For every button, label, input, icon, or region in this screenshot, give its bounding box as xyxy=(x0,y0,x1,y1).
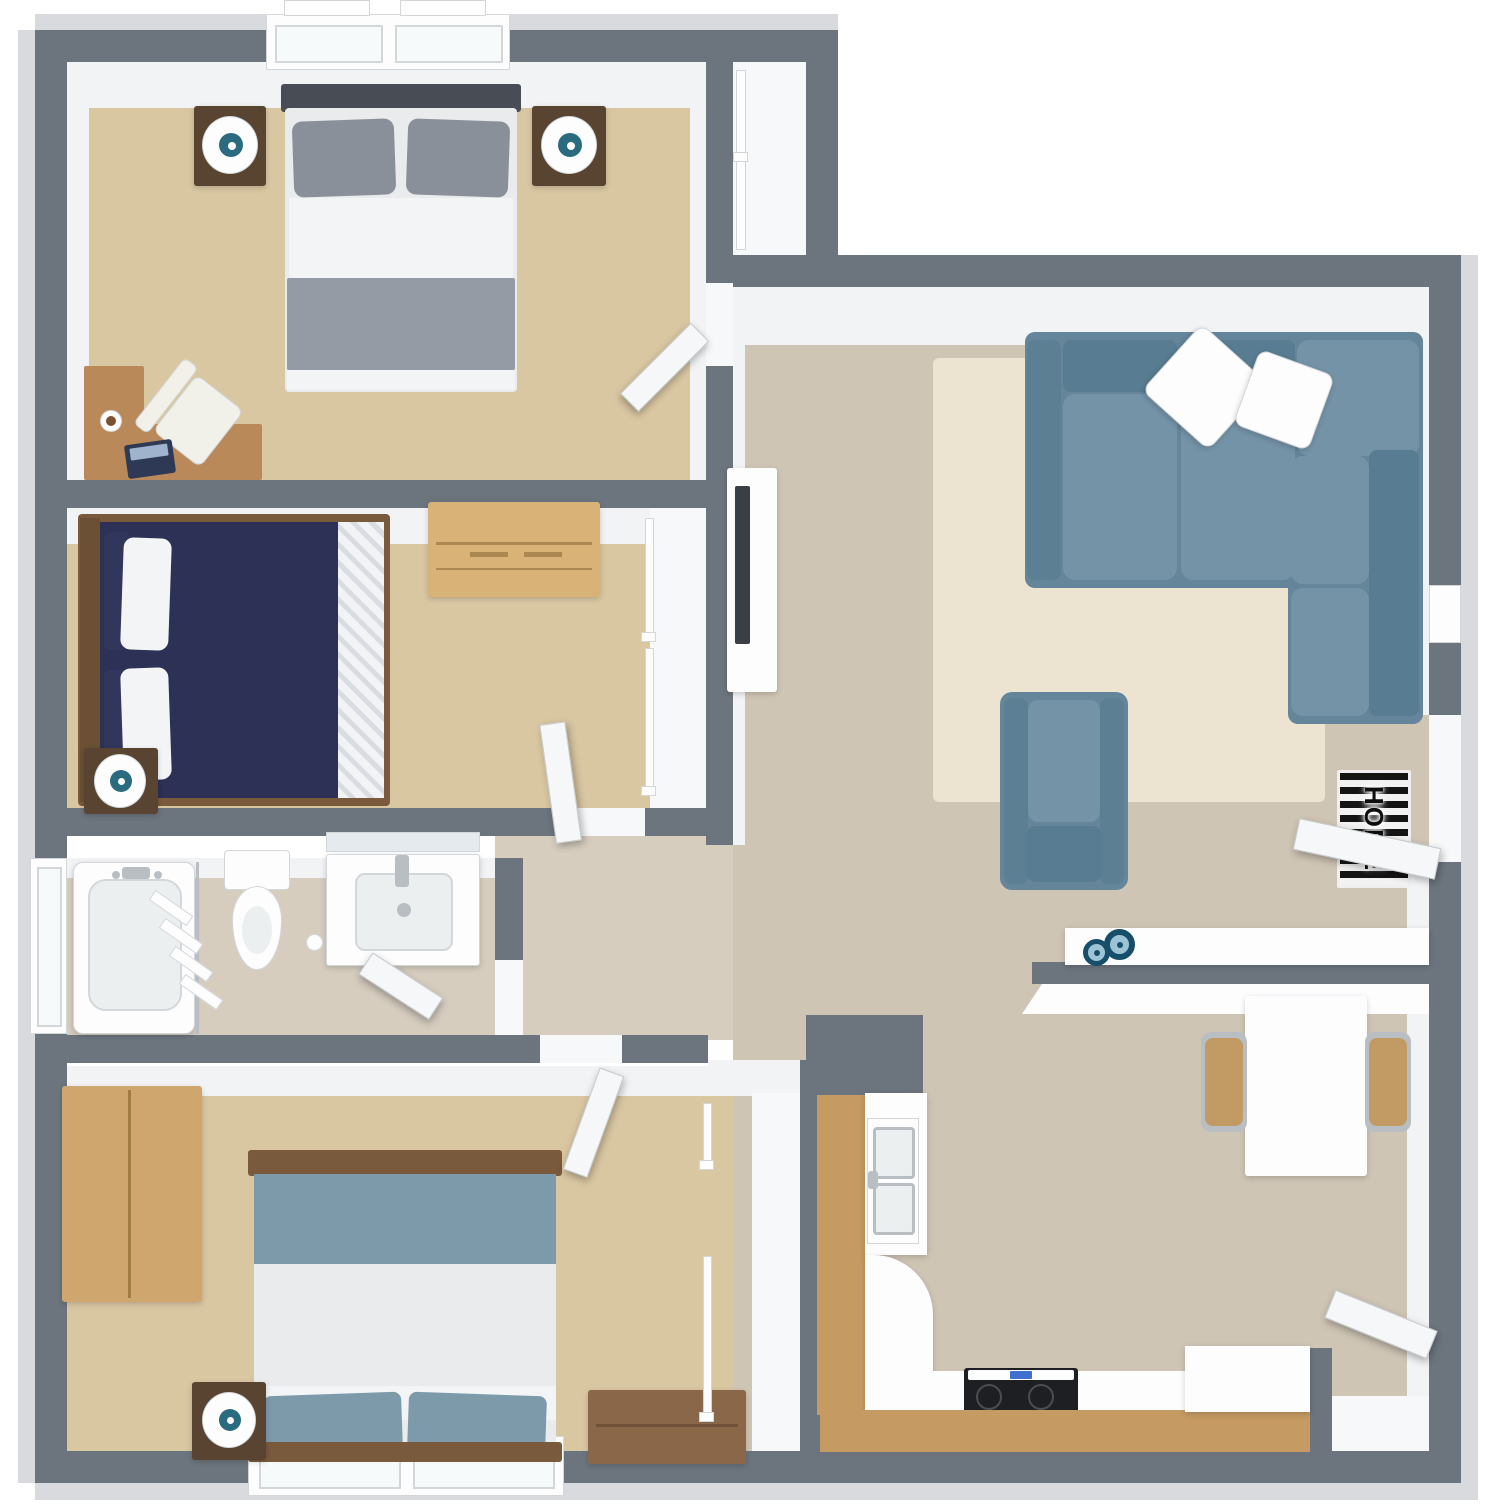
outer-edge-right xyxy=(1461,255,1478,1500)
sofa-seat-cushion xyxy=(1291,456,1369,584)
window-bedroom1 xyxy=(266,14,510,70)
bed-foot-strip xyxy=(287,370,515,390)
toilet-seat-inner xyxy=(242,906,272,954)
wall-bedroom1-right-upper xyxy=(706,62,733,283)
bed-pillow xyxy=(120,537,172,651)
nightstand xyxy=(192,1382,266,1460)
wall-kitchen-se xyxy=(1310,1348,1332,1451)
stove-burner xyxy=(976,1384,1002,1410)
doorway-bedroom1 xyxy=(706,283,733,366)
sink-basin xyxy=(873,1183,915,1235)
armchair-arm xyxy=(1100,698,1124,884)
lamp-bulb xyxy=(567,142,575,150)
closet-door-handle xyxy=(699,1412,714,1422)
window-pane xyxy=(395,25,503,63)
faucet-knob xyxy=(112,871,120,879)
bed-pillow xyxy=(292,118,397,198)
armchair-arm xyxy=(1004,698,1028,884)
closet-door-panel xyxy=(645,518,654,642)
laptop-screen xyxy=(129,443,168,460)
bed-blanket xyxy=(287,278,515,370)
window-pane xyxy=(37,867,62,1027)
table-lamp xyxy=(202,1392,256,1448)
dresser-seam xyxy=(436,542,592,545)
closet-bedroom2-interior xyxy=(650,508,706,810)
dining-table xyxy=(1245,996,1367,1176)
tub-faucet xyxy=(122,867,150,879)
nightstand xyxy=(194,106,266,186)
bed-pillow xyxy=(406,118,511,198)
bed-sheet-band xyxy=(289,198,513,280)
armchair-back xyxy=(1026,826,1102,882)
kitchen-counter-bottom-wood xyxy=(820,1410,1310,1452)
stove-display xyxy=(1010,1371,1032,1379)
table-lamp xyxy=(94,754,146,808)
window-right-wall xyxy=(1429,585,1461,643)
wardrobe-seam xyxy=(128,1090,131,1298)
dresser-handle xyxy=(470,552,508,557)
kitchen-counter-left-wood xyxy=(817,1095,865,1415)
dining-chair xyxy=(1365,1032,1411,1132)
wall-bathroom-right xyxy=(495,858,523,960)
chair-seat xyxy=(1369,1038,1407,1126)
closet-door-handle xyxy=(641,632,656,642)
lamp-bulb xyxy=(228,142,236,150)
table-lamp xyxy=(541,116,597,174)
closet-door-panel xyxy=(703,1103,712,1165)
bowl xyxy=(1104,929,1135,960)
doorway-bathroom xyxy=(495,958,523,1035)
window-bathroom-left xyxy=(30,858,67,1034)
kitchen-counter-right-block xyxy=(1185,1346,1310,1412)
wall-closet-strip-east xyxy=(806,30,838,287)
closet-door-panel xyxy=(645,648,654,794)
armchair xyxy=(1000,692,1128,890)
table-lamp xyxy=(202,116,258,174)
bathroom-vanity xyxy=(326,854,480,966)
closet-door-handle xyxy=(733,152,748,162)
bed-fold-band xyxy=(338,522,384,798)
wall-right-lower xyxy=(1429,862,1461,1483)
stove xyxy=(964,1368,1078,1414)
doorway-bedroom3 xyxy=(540,1035,622,1063)
hall-face-kitchen xyxy=(708,1060,800,1093)
sofa-seat-cushion xyxy=(1063,394,1177,580)
wall-right-upper xyxy=(1429,255,1461,585)
dining-chair xyxy=(1201,1032,1247,1132)
bar-ledge xyxy=(1022,984,1429,1014)
bowl-center xyxy=(1094,950,1100,956)
closet-door-handle xyxy=(641,786,656,796)
sofa-seat-cushion xyxy=(1291,588,1369,716)
coffee xyxy=(106,416,116,426)
toilet xyxy=(222,850,292,974)
tv xyxy=(735,486,750,644)
wall-bathroom-bottom xyxy=(35,1035,540,1063)
bed-third xyxy=(248,1150,562,1462)
entry-floor xyxy=(1429,715,1461,862)
kitchen-sink xyxy=(867,1118,919,1244)
nightstand xyxy=(84,748,158,814)
window-sill-tab xyxy=(400,0,486,16)
bathroom-mirror xyxy=(326,832,480,852)
chest-seam xyxy=(596,1424,738,1427)
vanity-drain xyxy=(397,903,411,917)
closet-door-panel xyxy=(703,1256,712,1418)
closet-bedroom3-interior xyxy=(752,1093,800,1451)
wall-divider-bedrooms xyxy=(35,480,717,508)
outer-edge-left xyxy=(18,30,35,1483)
window-pane xyxy=(275,25,383,63)
bed-master xyxy=(281,84,521,392)
coffee-cup xyxy=(100,410,122,432)
sofa-arm-left xyxy=(1027,340,1061,580)
wall-face-bedroom1-right xyxy=(690,108,706,480)
bed-blanket-blue xyxy=(254,1174,556,1264)
window-sill-tab xyxy=(284,0,370,16)
sink-basin xyxy=(873,1127,915,1179)
bowl-center xyxy=(1117,942,1123,948)
toilet-paper-holder xyxy=(306,934,323,951)
dresser xyxy=(428,502,600,597)
lamp-bulb xyxy=(227,1417,234,1424)
closet-door-handle xyxy=(699,1160,714,1170)
dresser-seam xyxy=(436,568,592,570)
bed-footbar xyxy=(248,1442,562,1462)
laptop xyxy=(124,439,176,479)
vanity-faucet xyxy=(395,855,409,887)
stove-burner xyxy=(1028,1384,1054,1410)
floor-plan: HOME xyxy=(0,0,1500,1511)
sofa-back-right xyxy=(1369,450,1419,716)
wall-kitchen-block xyxy=(806,1015,923,1100)
dresser-handle xyxy=(524,552,562,557)
wall-hall-stub xyxy=(622,1035,708,1063)
toilet-tank xyxy=(224,850,290,890)
sink-faucet xyxy=(868,1171,878,1189)
nightstand xyxy=(532,106,606,186)
storage-chest xyxy=(588,1390,746,1464)
wall-living-top xyxy=(733,255,1461,287)
chair-seat xyxy=(1205,1038,1243,1126)
lamp-bulb xyxy=(118,778,125,785)
wardrobe xyxy=(62,1086,202,1302)
wall-bedroom2-bottom-stub xyxy=(645,808,733,836)
bed-headbar xyxy=(248,1150,562,1176)
wall-right-mid xyxy=(1429,643,1461,715)
faucet-knob xyxy=(154,871,162,879)
armchair-seat xyxy=(1028,700,1100,822)
